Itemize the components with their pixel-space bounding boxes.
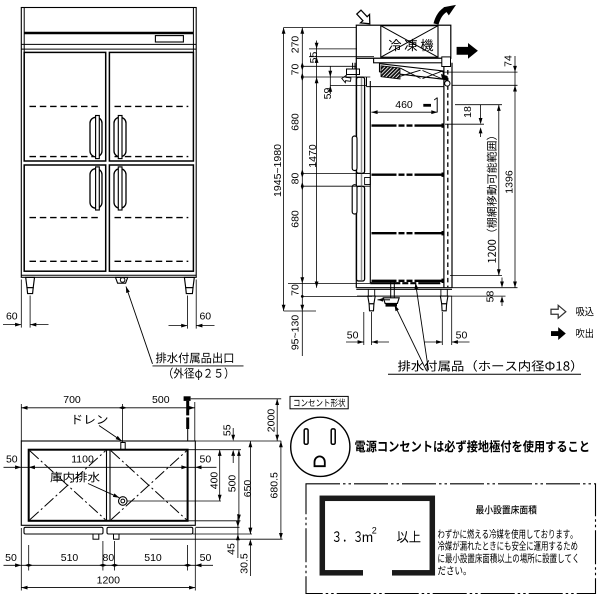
svg-text:1945~1980: 1945~1980	[272, 144, 284, 197]
svg-text:500: 500	[227, 475, 239, 493]
svg-text:2000: 2000	[266, 409, 278, 433]
svg-text:80: 80	[103, 552, 115, 564]
svg-text:70: 70	[290, 64, 302, 76]
svg-text:30.5: 30.5	[239, 553, 251, 574]
svg-text:680: 680	[290, 210, 302, 228]
svg-text:58: 58	[485, 291, 497, 303]
svg-text:45: 45	[226, 543, 238, 555]
svg-text:55: 55	[308, 52, 320, 64]
svg-text:1200: 1200	[97, 574, 121, 586]
svg-text:95~130: 95~130	[290, 315, 302, 350]
svg-text:50: 50	[200, 552, 212, 564]
svg-text:60: 60	[6, 311, 18, 323]
svg-text:50: 50	[456, 330, 468, 342]
svg-text:18: 18	[462, 106, 474, 118]
svg-text:400: 400	[209, 472, 221, 490]
svg-text:510: 510	[61, 552, 79, 564]
svg-text:60: 60	[199, 311, 211, 323]
svg-text:500: 500	[152, 394, 170, 406]
svg-text:510: 510	[144, 552, 162, 564]
svg-text:270: 270	[290, 36, 302, 54]
svg-text:460: 460	[395, 99, 413, 111]
svg-text:650: 650	[242, 480, 254, 498]
svg-text:74: 74	[503, 55, 515, 67]
svg-text:55: 55	[222, 424, 234, 436]
svg-text:50: 50	[347, 330, 359, 342]
svg-text:59: 59	[322, 88, 334, 100]
svg-text:1100: 1100	[71, 453, 94, 465]
svg-text:70: 70	[290, 284, 302, 296]
svg-text:680: 680	[290, 113, 302, 131]
svg-text:1470: 1470	[307, 144, 319, 168]
svg-text:80: 80	[290, 173, 302, 185]
svg-text:2: 2	[372, 526, 377, 536]
svg-text:700: 700	[63, 394, 81, 406]
svg-text:1396: 1396	[504, 170, 516, 194]
svg-text:50: 50	[200, 453, 212, 465]
svg-text:50: 50	[6, 453, 18, 465]
svg-text:50: 50	[5, 552, 17, 564]
svg-text:680.5: 680.5	[268, 472, 280, 498]
